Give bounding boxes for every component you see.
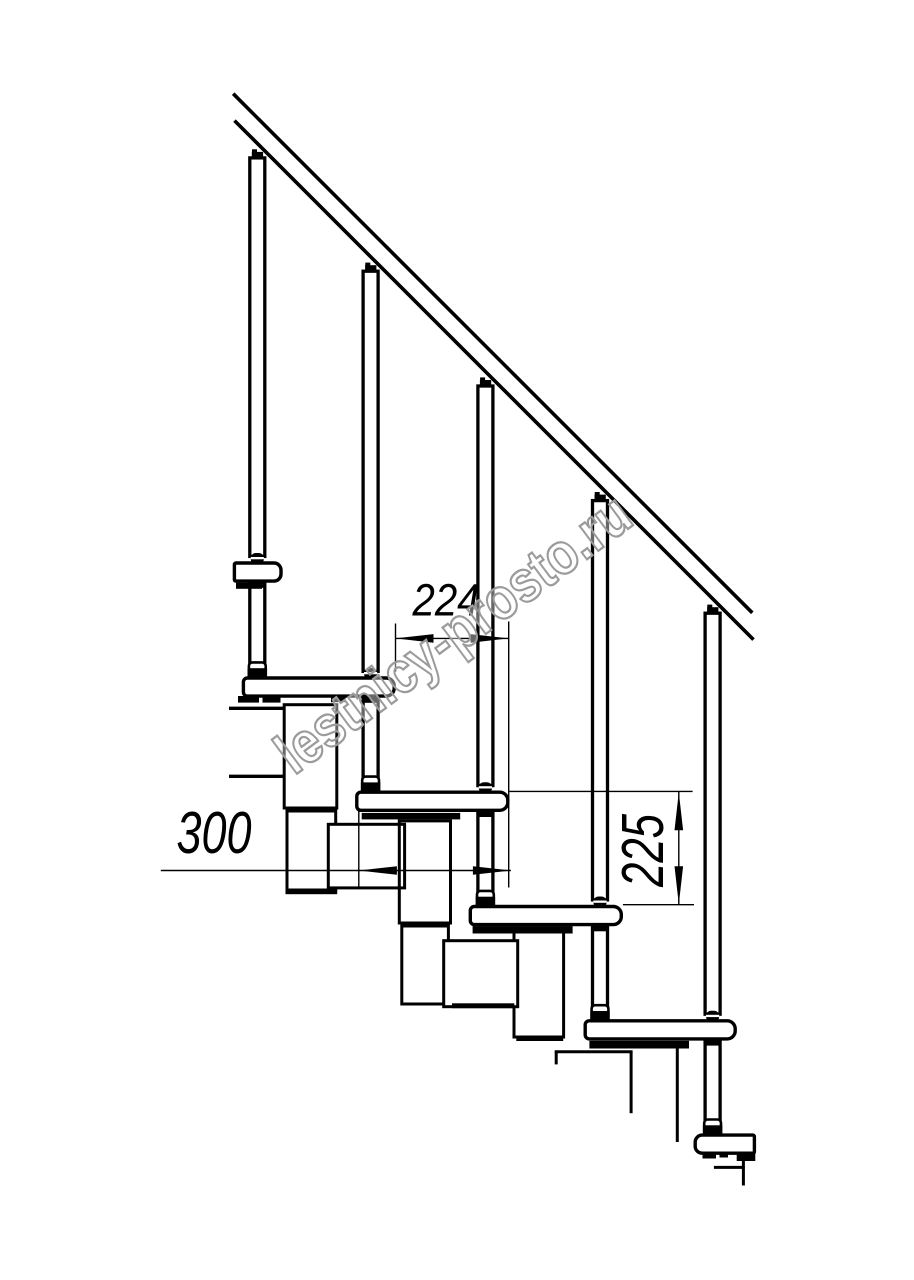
svg-text:300: 300 bbox=[177, 800, 252, 866]
svg-text:225: 225 bbox=[610, 814, 676, 888]
